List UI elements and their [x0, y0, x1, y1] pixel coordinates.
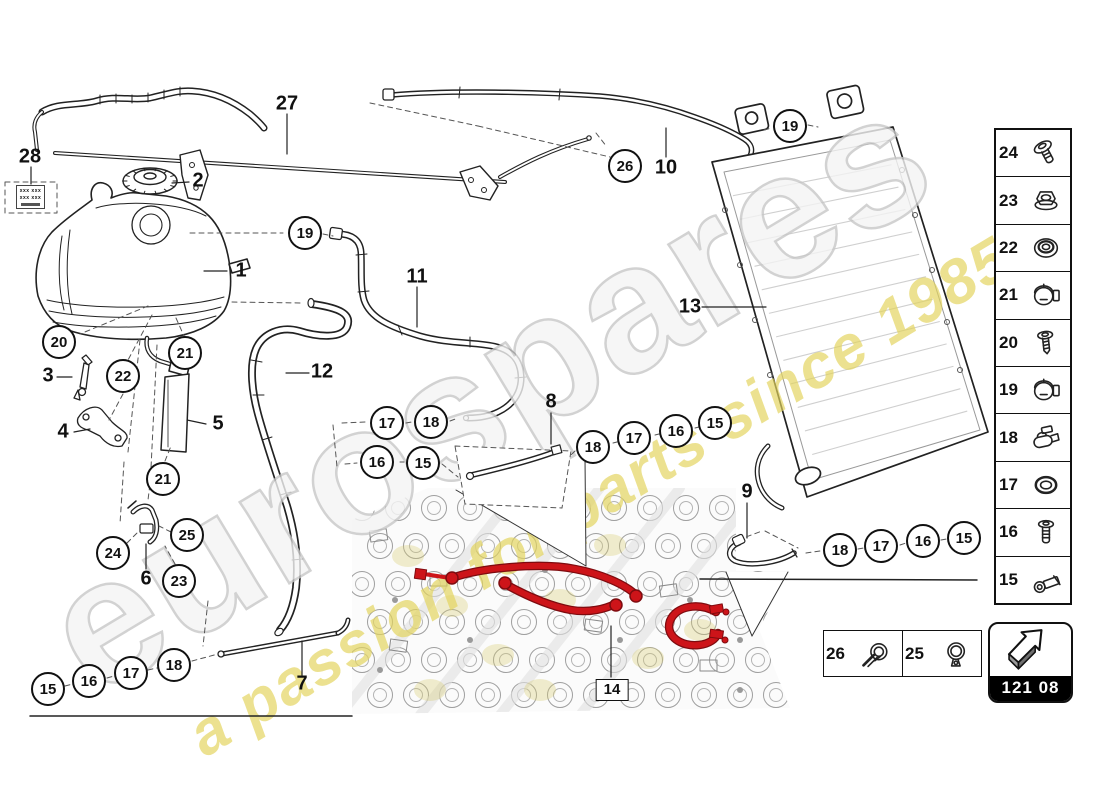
hose-8-drawing — [455, 445, 571, 508]
callout-circle-22[interactable]: 22 — [106, 359, 140, 393]
parts-list-item-18[interactable]: 18 — [996, 414, 1070, 461]
hose-9-drawing — [730, 534, 797, 564]
legend-number: 25 — [905, 644, 930, 664]
callout-circle-18[interactable]: 18 — [576, 430, 610, 464]
callout-circle-16[interactable]: 16 — [360, 445, 394, 479]
callout-circle-17[interactable]: 17 — [370, 406, 404, 440]
parts-list-item-17[interactable]: 17 — [996, 462, 1070, 509]
parts-list-item-24[interactable]: 24 — [996, 130, 1070, 177]
callout-circle-15[interactable]: 15 — [698, 406, 732, 440]
callout-circle-16[interactable]: 16 — [906, 524, 940, 558]
o-ring-icon — [1024, 470, 1067, 500]
callout-label-10[interactable]: 10 — [655, 157, 677, 180]
grommet-seal-icon — [1024, 233, 1067, 263]
callout-circle-21[interactable]: 21 — [146, 462, 180, 496]
callout-circle-20[interactable]: 20 — [42, 325, 76, 359]
callout-circle-18[interactable]: 18 — [157, 648, 191, 682]
banjo-fitting-icon — [1024, 565, 1067, 595]
callout-circle-23[interactable]: 23 — [162, 564, 196, 598]
sticker-bar — [21, 203, 40, 206]
callout-label-9[interactable]: 9 — [741, 481, 752, 504]
clamps-legend-box: 2625 — [823, 630, 982, 677]
parts-list-item-23[interactable]: 23 — [996, 177, 1070, 224]
parts-list-number: 20 — [999, 333, 1024, 353]
callout-label-11[interactable]: 11 — [406, 266, 427, 289]
callout-circle-15[interactable]: 15 — [947, 521, 981, 555]
legend-number: 26 — [826, 644, 851, 664]
callout-circle-21[interactable]: 21 — [168, 336, 202, 370]
callout-label-13[interactable]: 13 — [679, 296, 701, 319]
callout-label-14[interactable]: 14 — [596, 679, 629, 701]
callout-circle-19[interactable]: 19 — [773, 109, 807, 143]
callout-circle-19[interactable]: 19 — [288, 216, 322, 250]
part-3-sensor-drawing — [74, 355, 92, 400]
callout-circle-26[interactable]: 26 — [608, 149, 642, 183]
callout-label-2[interactable]: 2 — [192, 170, 203, 193]
callout-label-4[interactable]: 4 — [57, 421, 68, 444]
parts-list-number: 21 — [999, 285, 1024, 305]
clamp-with-tool-icon — [851, 639, 900, 669]
callout-label-12[interactable]: 12 — [311, 361, 333, 384]
parts-list-number: 22 — [999, 238, 1024, 258]
parts-list-number: 15 — [999, 570, 1024, 590]
parts-list-sidebar: 24232221201918171615 — [994, 128, 1072, 605]
parts-list-number: 19 — [999, 380, 1024, 400]
parts-list-number: 17 — [999, 475, 1024, 495]
callout-circle-24[interactable]: 24 — [96, 536, 130, 570]
coolant-cap-drawing — [123, 168, 178, 194]
callout-label-1[interactable]: 1 — [235, 260, 246, 283]
callout-label-6[interactable]: 6 — [140, 568, 151, 591]
parts-list-item-21[interactable]: 21 — [996, 272, 1070, 319]
callout-label-8[interactable]: 8 — [545, 391, 556, 414]
coolant-system-parts-diagram: eurospares a passion for parts since 198… — [0, 0, 1100, 800]
parts-list-number: 23 — [999, 191, 1024, 211]
spring-clip-icon — [1024, 423, 1067, 453]
parts-list-number: 24 — [999, 143, 1024, 163]
flange-nut-icon — [1024, 186, 1067, 216]
hose-clamp-icon — [1024, 375, 1067, 405]
callout-circle-17[interactable]: 17 — [864, 529, 898, 563]
part-4-bracket-drawing — [77, 407, 127, 446]
sticker-line-2: xxx xxx — [20, 195, 42, 202]
callout-circle-17[interactable]: 17 — [617, 421, 651, 455]
callout-label-28[interactable]: 28 — [19, 146, 41, 169]
ear-clamp-icon — [930, 639, 979, 669]
bolt-icon — [1024, 517, 1067, 547]
hose-27-drawing — [34, 87, 591, 200]
callout-circle-16[interactable]: 16 — [72, 664, 106, 698]
callout-circle-18[interactable]: 18 — [823, 533, 857, 567]
part-5-pad-drawing — [161, 374, 189, 452]
pan-head-screw-icon — [1024, 138, 1067, 168]
warning-sticker-28: xxx xxx xxx xxx — [16, 185, 45, 209]
callout-label-7[interactable]: 7 — [296, 673, 307, 696]
section-code-badge[interactable]: 121 08 — [988, 622, 1073, 703]
callout-circle-15[interactable]: 15 — [406, 446, 440, 480]
hose-clamp-icon — [1024, 280, 1067, 310]
parts-list-number: 16 — [999, 522, 1024, 542]
direction-arrow-icon — [990, 624, 1071, 676]
callout-circle-16[interactable]: 16 — [659, 414, 693, 448]
callout-circle-15[interactable]: 15 — [31, 672, 65, 706]
callout-label-27[interactable]: 27 — [276, 93, 298, 116]
tapping-screw-icon — [1024, 328, 1067, 358]
parts-list-number: 18 — [999, 428, 1024, 448]
legend-item-26[interactable]: 26 — [824, 631, 903, 676]
parts-list-item-22[interactable]: 22 — [996, 225, 1070, 272]
callout-label-3[interactable]: 3 — [42, 365, 53, 388]
sticker-line-1: xxx xxx — [20, 188, 42, 195]
parts-list-item-15[interactable]: 15 — [996, 557, 1070, 603]
callout-label-5[interactable]: 5 — [212, 413, 223, 436]
callout-circle-25[interactable]: 25 — [170, 518, 204, 552]
parts-list-item-19[interactable]: 19 — [996, 367, 1070, 414]
section-code: 121 08 — [990, 676, 1071, 701]
parts-list-item-16[interactable]: 16 — [996, 509, 1070, 556]
legend-item-25[interactable]: 25 — [903, 631, 981, 676]
parts-list-item-20[interactable]: 20 — [996, 320, 1070, 367]
callout-circle-18[interactable]: 18 — [414, 405, 448, 439]
callout-circle-17[interactable]: 17 — [114, 656, 148, 690]
